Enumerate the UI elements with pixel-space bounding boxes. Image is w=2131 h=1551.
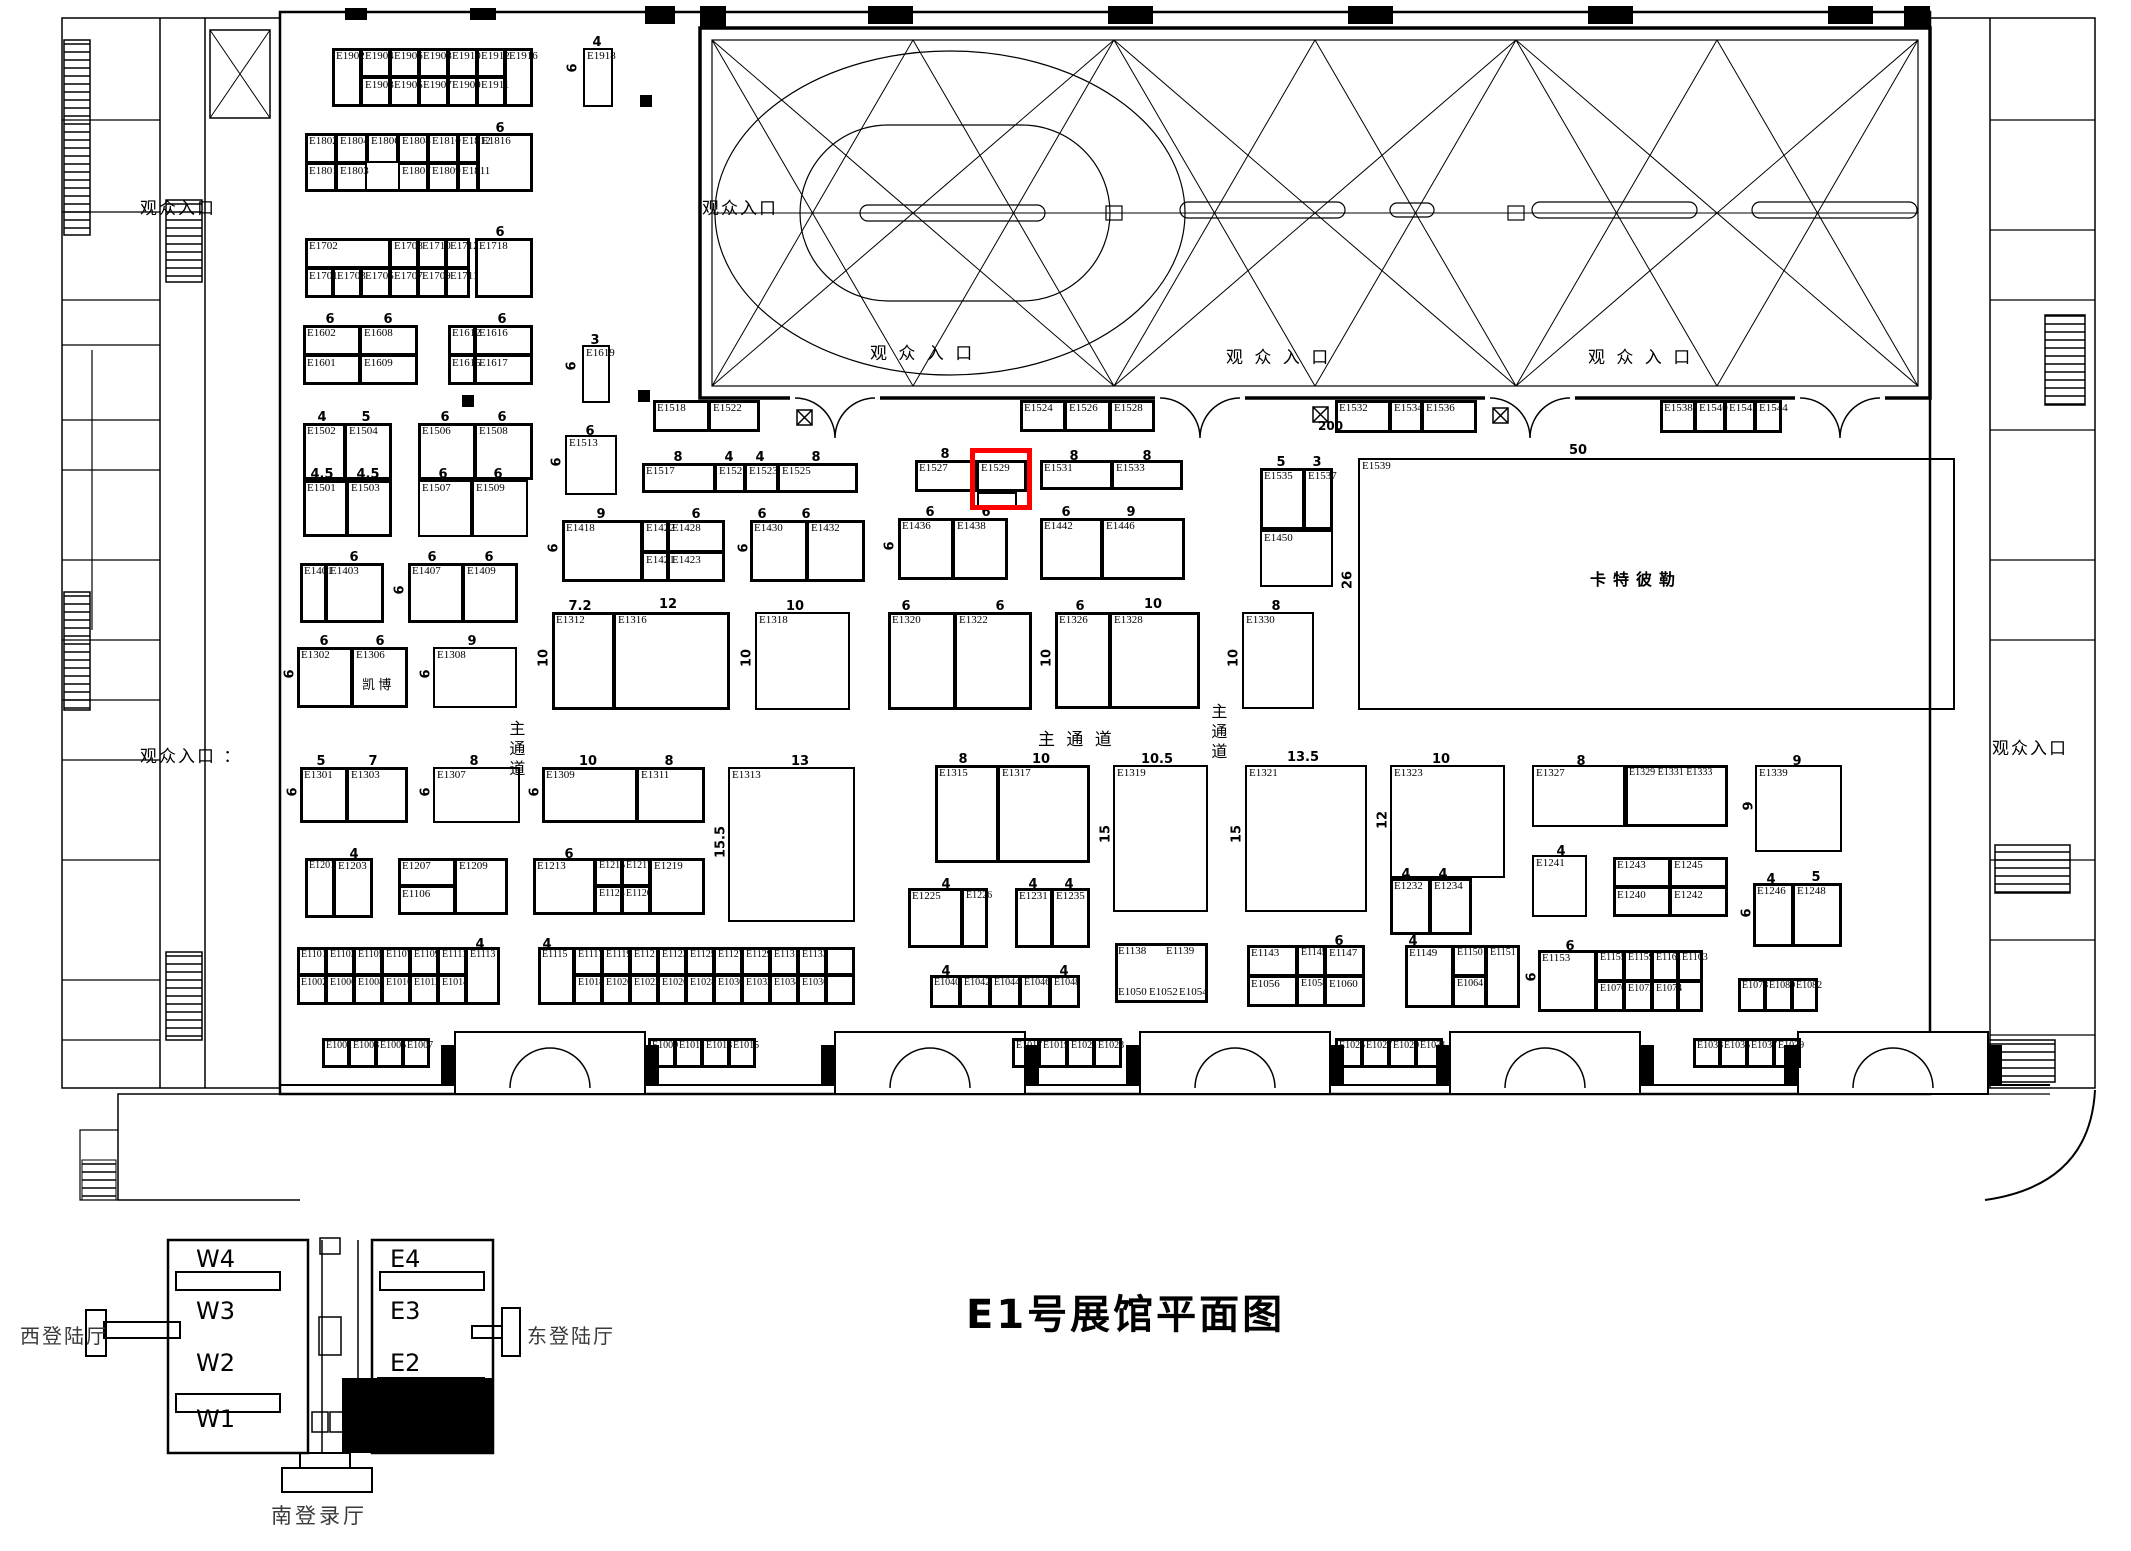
booth-E1231: E1231 — [1015, 888, 1052, 948]
booth-E1021: E1021 — [1067, 1038, 1094, 1068]
booth-E1048: E1048 — [1050, 975, 1080, 1008]
booth-E1531: E1531 — [1040, 460, 1112, 490]
booth-E1125: E1125 — [686, 947, 714, 975]
wall-fill — [868, 6, 913, 24]
dimension-label: 10 — [786, 600, 804, 613]
dimension-label: 6 — [1061, 506, 1070, 519]
dimension-label: 15.5 — [715, 826, 728, 858]
booth-E1806: E1806 — [367, 133, 398, 163]
booth-E1303: E1303 — [347, 767, 408, 823]
booth-E1240: E1240 — [1613, 887, 1670, 917]
dimension-label: 8 — [1271, 600, 1280, 613]
num-200: 200 — [1318, 420, 1343, 434]
booth-E1117: E1117 — [574, 947, 602, 975]
entrance-left-mid: 观众入口 ： — [140, 748, 242, 768]
booth-E1033: E1033 — [1693, 1038, 1720, 1068]
booth-E1536: E1536 — [1422, 400, 1477, 433]
dimension-label: 6 — [925, 506, 934, 519]
booth-E1008: E1008 — [354, 975, 382, 1005]
booth-E1064: E1064 — [1453, 976, 1486, 1008]
booth-E1242: E1242 — [1670, 887, 1728, 917]
booth-E1609: E1609 — [360, 355, 418, 385]
kp-hall-e4: E4 — [390, 1246, 420, 1274]
booth-E1436: E1436 — [898, 518, 953, 580]
booth-E1046: E1046 — [1020, 975, 1050, 1008]
keyplan-east-lobby-label: 东登陆厅 — [527, 1320, 615, 1349]
booth-E1026: E1026 — [658, 975, 686, 1005]
dimension-label: 6 — [757, 508, 766, 521]
booth-E1403: E1403 — [326, 563, 384, 623]
booth-cell — [1678, 981, 1703, 1012]
booth-E1070: E1070 — [1596, 981, 1624, 1012]
dimension-label: 8 — [673, 451, 682, 464]
booth-E1155: E1155 — [1596, 950, 1624, 981]
wall-fill — [821, 1045, 835, 1085]
dimension-label: 6 — [691, 508, 700, 521]
dimension-label: 6 — [1741, 908, 1754, 917]
booth-E1912: E1912 — [477, 48, 505, 77]
wall-fill — [342, 1378, 493, 1453]
booth-E1527: E1527 — [915, 460, 977, 492]
dimension-label: 15 — [1100, 825, 1113, 843]
booth-E1020: E1020 — [602, 975, 630, 1005]
booth-E1533: E1533 — [1112, 460, 1183, 490]
booth-E1133: E1133 — [798, 947, 826, 975]
dimension-label: 4 — [542, 938, 551, 951]
dimension-label: 3 — [1312, 456, 1321, 469]
dimension-label: 6 — [287, 787, 300, 796]
booth-E1012: E1012 — [410, 975, 438, 1005]
booth-E1612: E1612 — [448, 325, 475, 355]
booth-E1328: E1328 — [1110, 612, 1200, 709]
booth-E1432: E1432 — [807, 520, 865, 582]
wall-fill — [700, 6, 726, 28]
booth-E1409: E1409 — [463, 563, 518, 623]
booth-E1701: E1701 — [305, 268, 333, 298]
dimension-label: 8 — [1069, 450, 1078, 463]
booth-E1121: E1121 — [630, 947, 658, 975]
booth-E1209: E1209 — [455, 858, 508, 915]
booth-E1248: E1248 — [1793, 883, 1842, 947]
booth-E1918: E1918 — [583, 48, 613, 107]
booth-E1703: E1703 — [333, 268, 361, 298]
exhibition-floor-plan: E1号展馆平面图 卡特彼勒 西登陆厅 东登陆厅 南登录厅 E1 E1902E19… — [0, 0, 2131, 1551]
dimension-label: 10 — [1432, 753, 1450, 766]
booth-E1902: E1902 — [332, 48, 361, 107]
booth-E1245: E1245 — [1670, 857, 1728, 887]
booth-E1532: E1532 — [1335, 400, 1390, 433]
dimension-label: 6 — [495, 122, 504, 135]
dimension-label: 4 — [1064, 878, 1073, 891]
dimension-label: 8 — [940, 448, 949, 461]
booth-E1028: E1028 — [686, 975, 714, 1005]
dimension-label: 6 — [394, 585, 407, 594]
booth-E1523: E1523 — [745, 463, 778, 493]
booth-E1329-E1331-E1333: E1329 E1331 E1333 — [1625, 765, 1728, 827]
booth-E1241: E1241 — [1532, 855, 1587, 917]
dimension-label: 6 — [325, 313, 334, 326]
dimension-label: 5 — [1811, 871, 1820, 884]
booth-E1802: E1802 — [305, 133, 336, 163]
booth-E1905: E1905 — [390, 77, 419, 107]
kp-hall-w2: W2 — [196, 1350, 235, 1378]
dimension-label: 9 — [1743, 801, 1756, 810]
booth-E1027: E1027 — [1362, 1038, 1389, 1068]
dimension-label: 6 — [548, 543, 561, 552]
booth-E1803: E1803 — [336, 163, 367, 192]
booth-E1232: E1232 — [1390, 878, 1430, 935]
dimension-label: 6 — [284, 669, 297, 678]
booth-E1909: E1909 — [448, 77, 477, 107]
booth-E1705: E1705 — [361, 268, 390, 298]
booth-E1123: E1123 — [658, 947, 686, 975]
dimension-label: 4 — [1059, 965, 1068, 978]
booth-E1153: E1153 — [1538, 950, 1596, 1012]
booth-E1301: E1301 — [300, 767, 347, 823]
booth-E1423: E1423 — [668, 552, 725, 582]
booth-E1072: E1072 — [1624, 981, 1652, 1012]
main-aisle-h: 主 通 道 — [1038, 731, 1115, 751]
dimension-label: 4 — [349, 848, 358, 861]
dimension-label: 10 — [741, 649, 754, 667]
dimension-label: 9 — [467, 635, 476, 648]
booth-E1322: E1322 — [955, 612, 1032, 710]
wall-fill — [1988, 1045, 2002, 1085]
dimension-label: 12 — [1377, 811, 1390, 829]
dimension-label: 4 — [592, 36, 601, 49]
keyplan-south-lobby-label: 南登录厅 — [271, 1500, 367, 1530]
booth-E1430: E1430 — [750, 520, 807, 582]
booth-E1243: E1243 — [1613, 857, 1670, 887]
booth-E1234: E1234 — [1430, 878, 1472, 935]
booth-E1702: E1702 — [305, 238, 390, 268]
booth-E1101: E1101 — [297, 947, 326, 975]
booth-E1124: E1124 — [595, 886, 622, 915]
dimension-label: 6 — [383, 313, 392, 326]
booth-E1517: E1517 — [642, 463, 715, 493]
dimension-label: 4 — [475, 938, 484, 951]
booth-cell — [826, 975, 855, 1005]
dimension-label: 4 — [1766, 873, 1775, 886]
dimension-label: 4 — [755, 451, 764, 464]
dimension-label: 6 — [901, 600, 910, 613]
booth-E1712: E1712 — [446, 238, 470, 268]
lab-E1050: E1050 — [1118, 986, 1147, 999]
booth-E1339: E1339 — [1755, 765, 1842, 852]
booth-E1106: E1106 — [398, 886, 455, 915]
booth-E1005: E1005 — [376, 1038, 403, 1068]
dimension-label: 10 — [1032, 753, 1050, 766]
dimension-label: 8 — [469, 755, 478, 768]
dimension-label: 6 — [567, 63, 580, 72]
booth-E1002: E1002 — [297, 975, 326, 1005]
booth-E1321: E1321 — [1245, 765, 1367, 912]
wall-fill — [1904, 6, 1930, 28]
booth-E1707: E1707 — [390, 268, 418, 298]
booth-E1326: E1326 — [1055, 612, 1110, 709]
booth-E1544: E1544 — [1755, 400, 1782, 433]
dimension-label: 6 — [529, 787, 542, 796]
dimension-label: 4 — [1438, 868, 1447, 881]
booth-E1215: E1215 — [595, 858, 622, 886]
wall-fill — [1640, 1045, 1654, 1085]
booth-E1810: E1810 — [428, 133, 458, 163]
kp-hall-e2: E2 — [390, 1350, 420, 1378]
dimension-label: 6 — [493, 468, 502, 481]
dimension-label: 4 — [941, 965, 950, 978]
booth-E1503: E1503 — [347, 480, 392, 537]
lab-E1139: E1139 — [1166, 945, 1194, 958]
dimension-label: 10 — [1144, 598, 1162, 611]
booth-E1001: E1001 — [322, 1038, 349, 1068]
booth-E1542: E1542 — [1725, 400, 1755, 433]
wall-fill — [638, 390, 650, 402]
booth-E1226: E1226 — [962, 888, 988, 948]
booth-E1207: E1207 — [398, 858, 455, 886]
booth-E1201: E1201 — [305, 858, 334, 918]
booth-E1044: E1044 — [990, 975, 1020, 1008]
wall-fill — [1025, 1045, 1039, 1085]
booth-E1327: E1327 — [1532, 765, 1625, 827]
booth-E1159: E1159 — [1624, 950, 1652, 981]
wall-fill — [645, 6, 675, 24]
wall-fill — [1126, 1045, 1140, 1085]
booth-E1315: E1315 — [935, 765, 998, 863]
booth-E1126: E1126 — [622, 886, 650, 915]
booth-E1219: E1219 — [650, 858, 705, 915]
dimension-label: 6 — [484, 551, 493, 564]
dimension-label: 6 — [349, 551, 358, 564]
dimension-label: 6 — [319, 635, 328, 648]
booth-E1308: E1308 — [433, 647, 517, 708]
booth-E1710: E1710 — [418, 238, 446, 268]
dimension-label: 5 — [1276, 456, 1285, 469]
booth-E1103: E1103 — [326, 947, 354, 975]
main-aisle-v1: 主通道 — [506, 720, 524, 780]
dimension-label: 6 — [564, 848, 573, 861]
booth-E1080: E1080 — [1765, 978, 1792, 1012]
booth-E1163: E1163 — [1678, 950, 1703, 981]
booth-E1450: E1450 — [1260, 530, 1333, 587]
booth-E1105: E1105 — [354, 947, 382, 975]
dimension-label: 9 — [596, 508, 605, 521]
dimension-label: 26 — [1342, 571, 1355, 589]
wall-fill — [345, 8, 367, 20]
dimension-label: 6 — [497, 411, 506, 424]
page-title: E1号展馆平面图 — [966, 1282, 1285, 1340]
booth-E1903: E1903 — [361, 77, 390, 107]
dimension-label: 6 — [585, 425, 594, 438]
booth-E1034: E1034 — [770, 975, 798, 1005]
booth-E1616: E1616 — [475, 325, 533, 355]
booth-E1119: E1119 — [602, 947, 630, 975]
booth-E1217: E1217 — [622, 858, 650, 886]
dimension-label: 8 — [811, 451, 820, 464]
dimension-label: 4 — [317, 411, 326, 424]
booth-company-kaibo: 凯 博 — [362, 678, 391, 693]
booth-E1709: E1709 — [418, 268, 446, 298]
dimension-label: 8 — [1142, 450, 1151, 463]
booth-E1246: E1246 — [1753, 883, 1793, 947]
wall-fill — [1330, 1045, 1344, 1085]
booth-E1111: E1111 — [438, 947, 466, 975]
booth-E1150: E1150 — [1453, 945, 1486, 976]
booth-E1010: E1010 — [382, 975, 410, 1005]
dimension-label: 6 — [801, 508, 810, 521]
dimension-label: 5 — [316, 755, 325, 768]
booth-E1809: E1809 — [428, 163, 458, 192]
booth-E1109: E1109 — [410, 947, 438, 975]
dimension-label: 10 — [579, 755, 597, 768]
dimension-label: 9 — [1126, 506, 1135, 519]
dimension-label: 6 — [420, 787, 433, 796]
dimension-label: 10 — [1228, 649, 1241, 667]
booth-E1518: E1518 — [653, 400, 709, 432]
booth-E1522: E1522 — [709, 400, 760, 432]
booth-E1030: E1030 — [714, 975, 742, 1005]
dimension-label: 6 — [995, 600, 1004, 613]
booth-E1601: E1601 — [303, 355, 360, 385]
booth-E1407: E1407 — [408, 563, 463, 623]
booth-E1115: E1115 — [538, 947, 574, 1005]
booth-E1011: E1011 — [675, 1038, 702, 1068]
dimension-label: 10 — [538, 649, 551, 667]
booth-E1317: E1317 — [998, 765, 1090, 863]
dimension-label: 6 — [738, 543, 751, 552]
booth-E1804: E1804 — [336, 133, 367, 163]
booth-E1907: E1907 — [419, 77, 448, 107]
dimension-label: 6 — [1526, 972, 1539, 981]
booth-E1058: E1058 — [1297, 976, 1325, 1007]
wall-fill — [1436, 1045, 1450, 1085]
booth-cell — [826, 947, 855, 975]
booth-E1608: E1608 — [360, 325, 418, 355]
booth-E1718: E1718 — [475, 238, 533, 298]
kp-hall-w4: W4 — [196, 1246, 235, 1274]
booth-E1014: E1014 — [438, 975, 466, 1005]
dimension-label: 6 — [551, 457, 564, 466]
dimension-label: 3 — [590, 334, 599, 347]
lab-E1054: E1054 — [1179, 986, 1208, 999]
booth-E1904: E1904 — [361, 48, 390, 77]
booth-E1040: E1040 — [930, 975, 960, 1008]
dimension-label: 10 — [1041, 649, 1054, 667]
booth-E1537: E1537 — [1304, 468, 1333, 530]
lab-E1052: E1052 — [1149, 986, 1178, 999]
dimension-label: 4.5 — [310, 468, 333, 481]
booth-E1225: E1225 — [908, 888, 962, 948]
booth-E1022: E1022 — [630, 975, 658, 1005]
dimension-label: 7.2 — [568, 600, 591, 613]
booth-E1908: E1908 — [419, 48, 448, 77]
dimension-label: 9 — [1792, 755, 1801, 768]
booth-E1060: E1060 — [1325, 976, 1365, 1007]
booth-E1129: E1129 — [742, 947, 770, 975]
keyplan-west-lobby-label: 西登陆厅 — [20, 1320, 108, 1349]
booth-E1526: E1526 — [1065, 400, 1110, 432]
booth-E1421: E1421 — [642, 552, 668, 582]
south-wall — [80, 1085, 2050, 1200]
booth-E1319: E1319 — [1113, 765, 1208, 912]
dimension-label: 8 — [1576, 755, 1585, 768]
kp-hall-w1: W1 — [196, 1406, 235, 1434]
booth-E1617: E1617 — [475, 355, 533, 385]
booth-E1534: E1534 — [1390, 400, 1422, 433]
booth-E1035: E1035 — [1720, 1038, 1747, 1068]
dimension-label: 13 — [791, 755, 809, 768]
booth-E1602: E1602 — [303, 325, 360, 355]
booth-E1540: E1540 — [1695, 400, 1725, 433]
booth-E1318: E1318 — [755, 612, 850, 710]
wall-fill — [470, 8, 496, 20]
booth-E1711: E1711 — [446, 268, 470, 298]
dimension-label: 4 — [1401, 868, 1410, 881]
booth-E1528: E1528 — [1110, 400, 1155, 432]
dimension-label: 6 — [420, 669, 433, 678]
roof-truss-area — [700, 28, 1930, 398]
booth-E1808: E1808 — [398, 133, 428, 163]
booth-E1213: E1213 — [533, 858, 595, 915]
booth-E1018: E1018 — [574, 975, 602, 1005]
entrance-roof-left: 观众入口 — [702, 200, 778, 220]
booth-E1316: E1316 — [614, 612, 730, 710]
booth-E1442: E1442 — [1040, 518, 1102, 580]
booth-E1708: E1708 — [390, 238, 418, 268]
dimension-label: 6 — [440, 411, 449, 424]
dimension-label: 4 — [1556, 845, 1565, 858]
dimension-label: 4 — [941, 878, 950, 891]
booth-E1309: E1309 — [542, 767, 637, 823]
booth-E1619: E1619 — [582, 345, 610, 403]
booth-E1509: E1509 — [472, 480, 528, 537]
booth-E1422: E1422 — [642, 520, 668, 552]
wall-fill — [1108, 6, 1153, 24]
dimension-label: 8 — [664, 755, 673, 768]
booth-E1007: E1007 — [403, 1038, 430, 1068]
dimension-label: 6 — [438, 468, 447, 481]
wall-fill — [441, 1045, 455, 1085]
dimension-label: 13.5 — [1287, 751, 1319, 764]
booth-E1056: E1056 — [1247, 976, 1297, 1007]
dimension-label: 6 — [375, 635, 384, 648]
booth-E1029: E1029 — [1389, 1038, 1416, 1068]
dimension-label: 6 — [495, 226, 504, 239]
booth-E1501: E1501 — [303, 480, 347, 537]
dimension-label: 4 — [1028, 878, 1037, 891]
booth-E1807: E1807 — [398, 163, 428, 192]
booth-E1507: E1507 — [418, 480, 472, 537]
booth-E1042: E1042 — [960, 975, 990, 1008]
booth-E1615: E1615 — [448, 355, 475, 385]
booth-E1312: E1312 — [552, 612, 614, 710]
booth-E1330: E1330 — [1242, 612, 1314, 709]
wall-fill — [640, 95, 652, 107]
booth-E1078: E1078 — [1738, 978, 1765, 1012]
booth-E1113: E1113 — [466, 947, 500, 1005]
booth-E1013: E1013 — [702, 1038, 729, 1068]
kp-hall-e3: E3 — [390, 1298, 420, 1326]
booth-E1131: E1131 — [770, 947, 798, 975]
dimension-label: 4 — [1408, 935, 1417, 948]
booth-E1074: E1074 — [1652, 981, 1678, 1012]
dimension-label: 15 — [1231, 825, 1244, 843]
booth-E1513: E1513 — [565, 435, 617, 495]
booth-E1032: E1032 — [742, 975, 770, 1005]
dimension-label: 4 — [724, 451, 733, 464]
booth-E1911: E1911 — [477, 77, 505, 107]
entrance-top-1: 观 众 入 口 — [870, 345, 975, 365]
booth-E1524: E1524 — [1020, 400, 1065, 432]
